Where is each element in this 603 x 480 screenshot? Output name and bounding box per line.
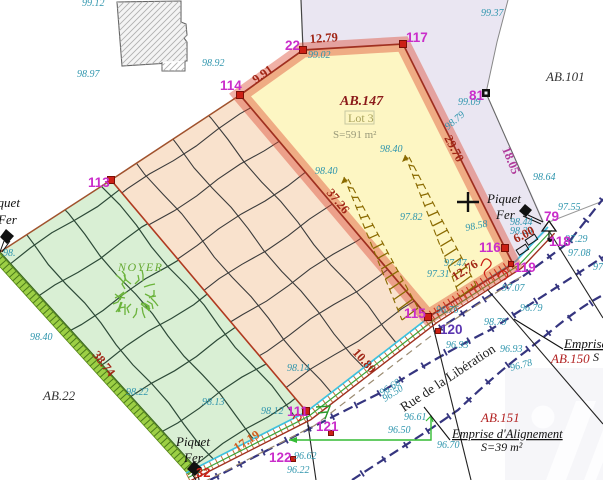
svg-text:AB.22: AB.22: [42, 388, 76, 403]
svg-text:Piquet: Piquet: [0, 195, 20, 210]
svg-text:114: 114: [220, 78, 242, 93]
svg-text:98.12: 98.12: [261, 406, 284, 417]
svg-text:99.02: 99.02: [308, 50, 331, 61]
svg-text:AB.147: AB.147: [339, 94, 384, 109]
svg-text:AB.101: AB.101: [545, 69, 585, 84]
svg-text:96.22: 96.22: [287, 465, 310, 476]
svg-text:97.08: 97.08: [568, 248, 591, 259]
svg-text:97.07: 97.07: [502, 283, 526, 294]
svg-text:98.97: 98.97: [77, 69, 101, 80]
svg-text:98.22: 98.22: [126, 387, 149, 398]
svg-text:AB.150: AB.150: [550, 351, 590, 366]
svg-text:97.55: 97.55: [558, 202, 581, 213]
svg-text:96.76: 96.76: [436, 305, 459, 316]
svg-text:98.79: 98.79: [484, 317, 507, 328]
svg-text:97.82: 97.82: [400, 212, 423, 223]
svg-text:S=591 m²: S=591 m²: [333, 129, 377, 141]
svg-text:96.93: 96.93: [446, 340, 469, 351]
svg-text:Emprise d'Alignement: Emprise d'Alignement: [451, 427, 563, 441]
svg-text:118: 118: [549, 234, 571, 249]
svg-text:122: 122: [269, 450, 292, 465]
svg-text:97.2: 97.2: [593, 262, 603, 273]
svg-text:Lot 3: Lot 3: [348, 111, 374, 125]
svg-text:98.64: 98.64: [533, 172, 556, 183]
svg-text:Fer: Fer: [495, 207, 516, 222]
svg-text:96.62: 96.62: [294, 451, 317, 462]
svg-text:Emprise: Emprise: [563, 336, 603, 351]
svg-text:117: 117: [406, 30, 428, 45]
svg-text:98.40: 98.40: [315, 166, 338, 177]
svg-text:96.50: 96.50: [388, 425, 411, 436]
svg-text:S=39 m²: S=39 m²: [481, 440, 523, 454]
svg-text:Piquet: Piquet: [486, 191, 521, 206]
svg-text:96.61: 96.61: [404, 412, 427, 423]
svg-text:120: 120: [440, 322, 463, 337]
svg-text:AB.151: AB.151: [480, 410, 520, 425]
svg-text:22: 22: [285, 38, 300, 53]
svg-text:96.79: 96.79: [520, 303, 543, 314]
svg-text:115: 115: [404, 306, 426, 321]
svg-text:96.93: 96.93: [500, 344, 523, 355]
svg-text:96.70: 96.70: [437, 440, 460, 451]
svg-text:116: 116: [479, 240, 501, 255]
svg-text:98.13: 98.13: [202, 397, 225, 408]
svg-text:111: 111: [287, 404, 309, 419]
svg-text:98.: 98.: [3, 248, 16, 259]
svg-text:99.12: 99.12: [82, 0, 105, 9]
svg-text:S: S: [593, 350, 599, 364]
svg-text:NOYER: NOYER: [117, 260, 164, 274]
svg-text:81: 81: [469, 88, 485, 103]
svg-text:Piquet: Piquet: [175, 434, 210, 449]
svg-text:98.40: 98.40: [30, 332, 53, 343]
svg-text:79: 79: [544, 209, 559, 224]
svg-text:97.31: 97.31: [427, 269, 450, 280]
svg-text:Fer: Fer: [183, 450, 204, 465]
svg-text:Fer: Fer: [0, 212, 18, 227]
svg-text:32: 32: [196, 465, 210, 480]
svg-text:98.14: 98.14: [287, 363, 310, 374]
svg-text:98.40: 98.40: [380, 144, 403, 155]
svg-text:98.92: 98.92: [202, 58, 225, 69]
svg-text:121: 121: [316, 419, 339, 434]
svg-text:119: 119: [514, 260, 536, 275]
svg-text:12.79: 12.79: [309, 30, 338, 46]
svg-text:113: 113: [88, 175, 110, 190]
svg-text:99.37: 99.37: [481, 8, 505, 19]
